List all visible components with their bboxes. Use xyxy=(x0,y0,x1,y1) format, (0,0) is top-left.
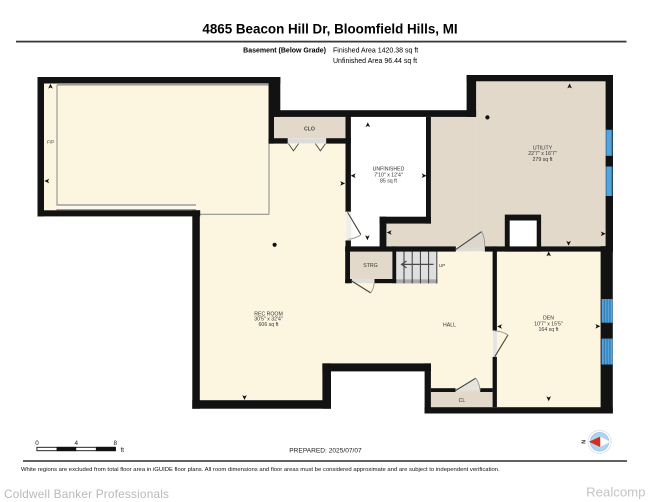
svg-text:Unfinished Area 96.44 sq ft: Unfinished Area 96.44 sq ft xyxy=(333,58,417,65)
svg-text:STRG: STRG xyxy=(363,263,377,269)
svg-text:Basement (Below Grade): Basement (Below Grade) xyxy=(243,48,326,55)
svg-text:PREPARED: 2025/07/07: PREPARED: 2025/07/07 xyxy=(289,447,362,454)
svg-text:8: 8 xyxy=(114,440,118,447)
svg-text:279 sq ft: 279 sq ft xyxy=(533,157,553,163)
svg-text:85 sq ft: 85 sq ft xyxy=(380,178,398,184)
svg-text:F/P: F/P xyxy=(47,139,54,144)
svg-text:UP: UP xyxy=(439,263,445,268)
svg-text:0: 0 xyxy=(35,440,39,447)
svg-text:Coldwell Banker Professionals: Coldwell Banker Professionals xyxy=(4,487,169,501)
svg-text:Realcomp: Realcomp xyxy=(586,485,645,500)
svg-text:164 sq ft: 164 sq ft xyxy=(539,327,559,333)
svg-text:Finished Area 1420.38 sq ft: Finished Area 1420.38 sq ft xyxy=(333,48,418,55)
svg-text:White regions are excluded fro: White regions are excluded from total fl… xyxy=(21,467,500,473)
svg-text:4865 Beacon Hill Dr, Bloomfiel: 4865 Beacon Hill Dr, Bloomfield Hills, M… xyxy=(202,21,457,36)
svg-text:CLO: CLO xyxy=(304,126,315,132)
svg-text:HALL: HALL xyxy=(443,322,456,328)
svg-text:CL: CL xyxy=(459,398,466,404)
svg-text:N: N xyxy=(582,440,588,444)
svg-text:606 sq ft: 606 sq ft xyxy=(259,322,279,328)
svg-text:ft: ft xyxy=(121,447,125,454)
svg-text:4: 4 xyxy=(74,440,78,447)
